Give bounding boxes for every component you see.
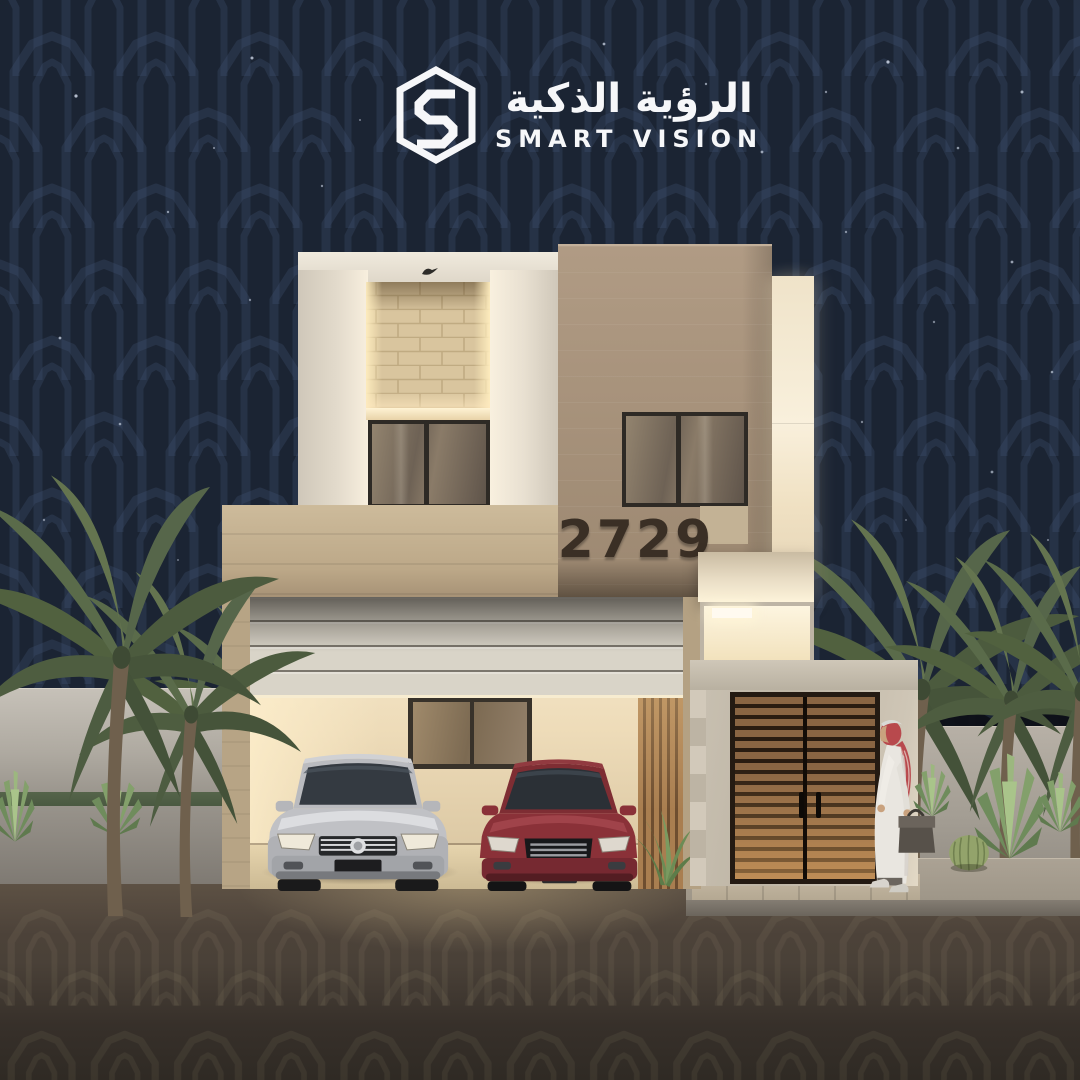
window-mullion	[676, 416, 681, 503]
bird-icon	[420, 264, 438, 276]
panel-seam	[772, 423, 814, 424]
white-facade-panel-left	[298, 270, 368, 510]
glass-reflection	[393, 424, 409, 504]
barrel-cactus	[946, 832, 992, 872]
white-facade-panel-right	[490, 270, 558, 510]
upper-left-window	[368, 420, 490, 508]
red-sedan-car	[474, 752, 644, 892]
corner-quoins	[690, 690, 706, 886]
glass-reflection	[697, 416, 713, 503]
lit-entrance-niche	[700, 602, 814, 664]
entrance-canopy	[698, 552, 814, 602]
logo-arabic-title: الرؤية الذكية	[505, 78, 752, 120]
logo-english-title: SMART VISION	[495, 125, 763, 153]
palm-tree	[0, 460, 285, 920]
door-leaf-left	[735, 697, 803, 879]
agave-plant	[912, 762, 952, 818]
door-handle-icon	[799, 792, 804, 818]
upper-right-window	[622, 412, 748, 507]
hexagon-s-monogram-icon	[393, 66, 479, 164]
agave-plant	[1036, 770, 1080, 834]
house-number: 2729	[556, 510, 716, 570]
door-handle-icon	[816, 792, 821, 818]
brand-logo: الرؤية الذكية SMART VISION	[393, 66, 763, 164]
under-brick-light-strip	[366, 408, 490, 420]
window-mullion	[424, 424, 429, 504]
entrance-roof-band	[690, 660, 918, 694]
brick-texture	[366, 282, 490, 414]
fern-plant	[634, 793, 696, 887]
platform-curb	[686, 900, 1080, 916]
ceiling-light	[712, 608, 752, 618]
night-villa-poster: الرؤية الذكية SMART VISION	[0, 0, 1080, 1080]
